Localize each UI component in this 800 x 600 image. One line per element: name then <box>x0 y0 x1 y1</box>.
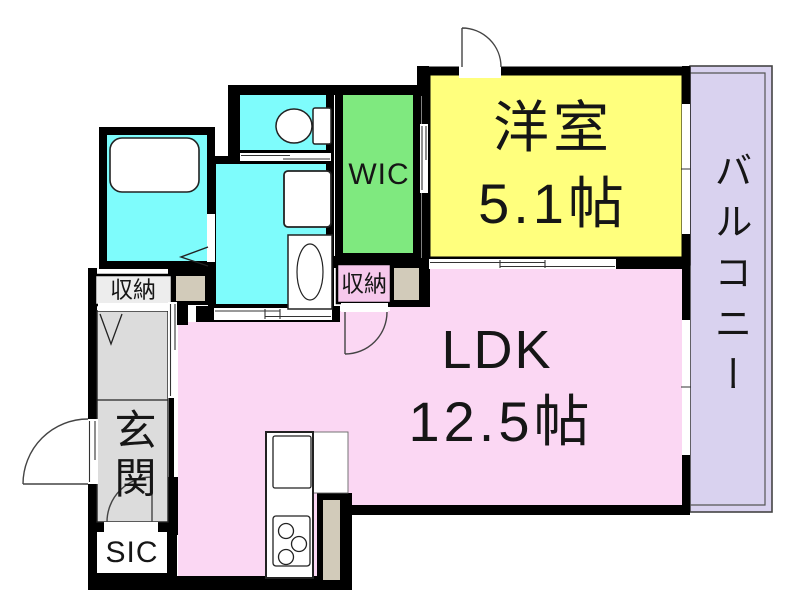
label-storage-hall: 収納 <box>110 279 156 302</box>
floor-plan: 洋室 5.1帖 LDK 12.5帖 WIC バルコニー 玄関 SIC 収納 収納 <box>0 0 800 600</box>
western-ldk-sliding-door <box>429 259 616 269</box>
genkan-top-threshold <box>98 303 168 311</box>
stove-burner-2 <box>292 537 307 552</box>
label-balcony: バルコニー <box>710 151 748 406</box>
fridge-space <box>313 432 348 493</box>
stove-burner-1 <box>279 524 294 539</box>
washer-pan <box>284 171 331 227</box>
wall-genkan-ldk-thin <box>169 398 174 478</box>
ldk-door-threshold <box>341 303 388 312</box>
kitchen-end-beige <box>323 500 340 580</box>
toilet-bowl <box>276 109 312 143</box>
label-western-room: 洋室 <box>493 100 613 156</box>
label-storage-wic: 収納 <box>341 273 387 296</box>
entry-door-threshold <box>87 419 98 484</box>
washroom-ldk-sliding-door <box>214 308 332 320</box>
label-sic: SIC <box>105 538 158 568</box>
vanity-sink-bowl <box>297 244 323 300</box>
storage-wic-beige <box>394 268 419 300</box>
kitchen-sink <box>273 436 311 488</box>
toilet-sliding-door <box>240 153 331 161</box>
sic-threshold <box>104 522 158 532</box>
storage-hall-beige <box>176 276 205 301</box>
label-entrance: 玄関 <box>111 408 153 504</box>
label-ldk-area: 12.5帖 <box>409 394 594 450</box>
genkan-ldk-sliding-door <box>168 302 177 398</box>
wall-ldk-bottom <box>343 505 690 515</box>
toilet-tank <box>313 108 331 144</box>
label-western-room-area: 5.1帖 <box>478 176 628 232</box>
wic-western-door-opening <box>420 124 428 193</box>
label-ldk: LDK <box>441 323 552 377</box>
bathtub <box>110 138 199 192</box>
label-wic: WIC <box>348 160 409 190</box>
western-entry-threshold <box>459 65 501 78</box>
stove-burner-3 <box>279 550 294 565</box>
bathroom-door-opening <box>207 214 215 262</box>
